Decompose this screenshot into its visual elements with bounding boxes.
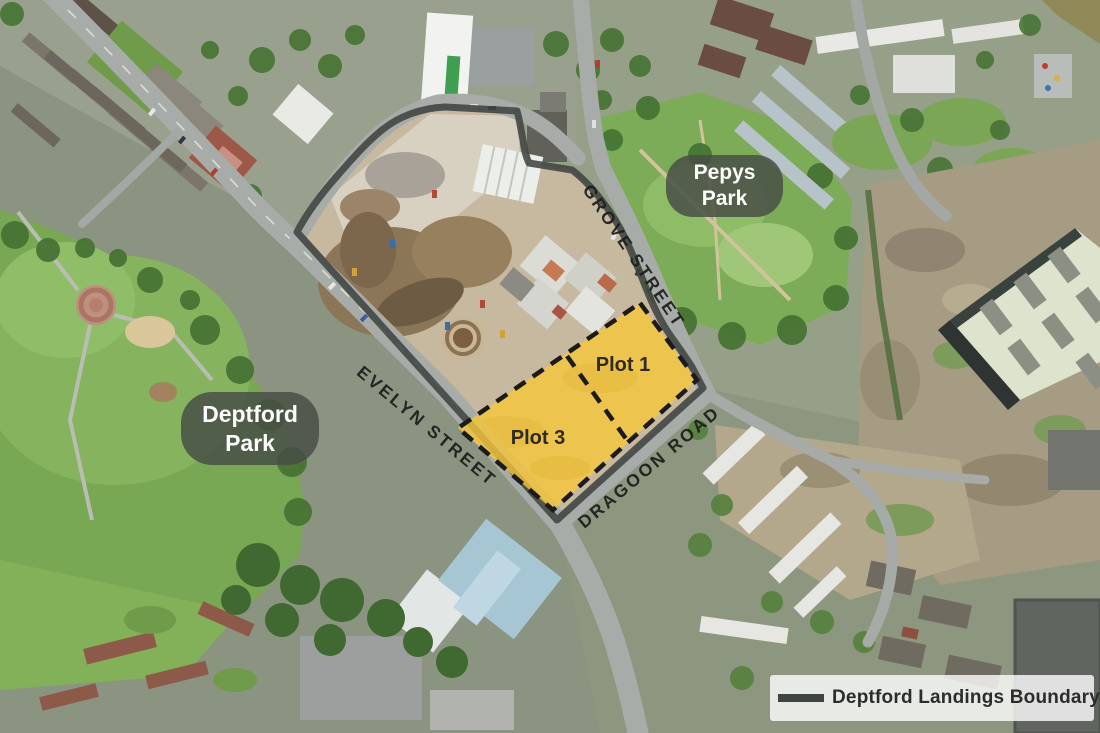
- pepys-park-badge-line1: Pepys: [694, 160, 756, 186]
- deptford-park-badge-line1: Deptford: [202, 400, 298, 428]
- map-canvas: GROVE STREET EVELYN STREET DRAGOON ROAD …: [0, 0, 1100, 733]
- legend: Deptford Landings Boundary: [770, 675, 1094, 721]
- aerial-imagery: GROVE STREET EVELYN STREET DRAGOON ROAD …: [0, 0, 1100, 733]
- boundary-line-swatch: [778, 694, 824, 702]
- plot-3-label: Plot 3: [511, 427, 565, 449]
- legend-label: Deptford Landings Boundary: [832, 687, 1100, 709]
- plot-1-label: Plot 1: [596, 354, 650, 376]
- pepys-park-badge: Pepys Park: [666, 155, 783, 217]
- deptford-park-badge: Deptford Park: [181, 392, 319, 465]
- pepys-park-badge-line2: Park: [702, 186, 748, 212]
- deptford-park-badge-line2: Park: [225, 429, 275, 457]
